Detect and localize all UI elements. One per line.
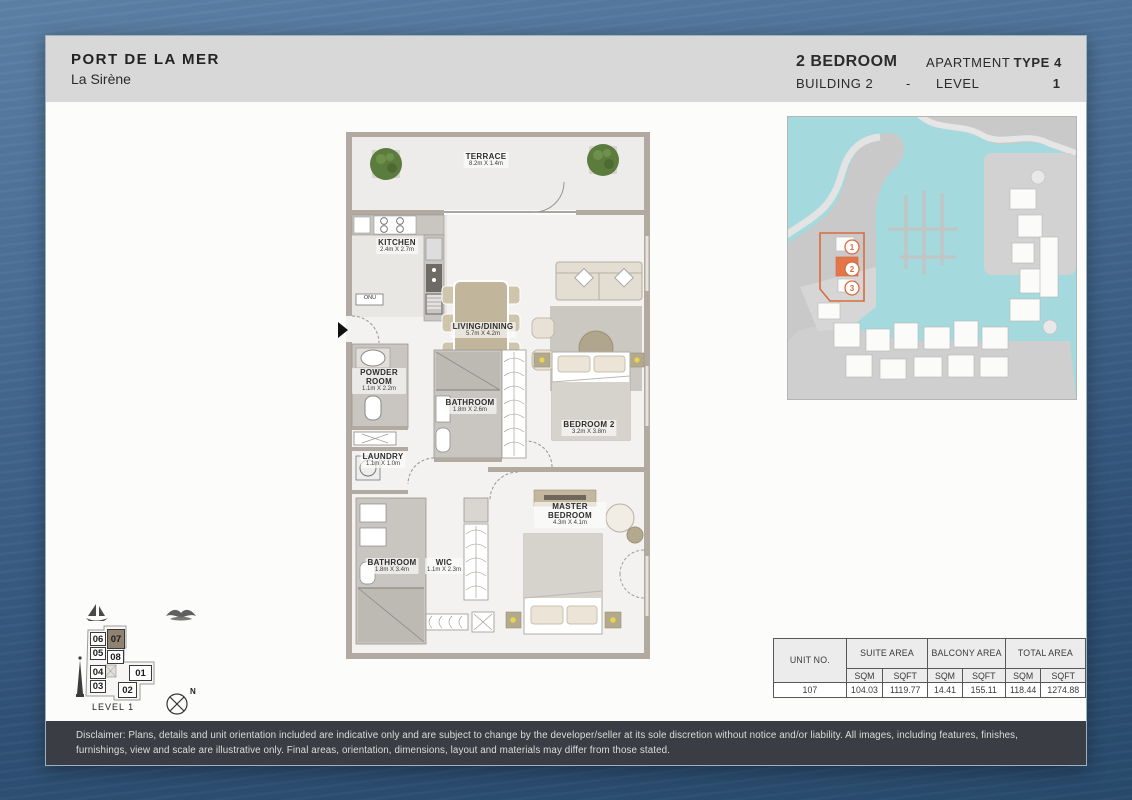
balcony-sqm-header: SQM [928,669,963,683]
keyplan-unit-01: 01 [129,665,152,681]
level-label: LEVEL [936,76,979,91]
room-label-terrace: TERRACE 8.2m X 1.4m [464,152,509,168]
total-sqm-header: SQM [1005,669,1041,683]
building-label: BUILDING 2 [796,76,873,91]
partition-wall [488,467,644,472]
unit-type-title: 2 BEDROOM [796,53,897,71]
entry-door-gap [346,316,352,342]
pillow [558,356,590,372]
apartment-label: APARTMENT [926,55,1010,70]
total-area-header: TOTAL AREA [1005,639,1085,669]
header-bar: PORT DE LA MER La Sirène 2 BEDROOM APART… [46,36,1086,102]
disclaimer-bar: Disclaimer: Plans, details and unit orie… [46,721,1086,765]
sink [360,528,386,546]
room-label-wic: WIC 1.1m X 2.3m [425,558,463,574]
sailboat-icon [86,604,108,621]
partition-wall [434,458,502,462]
compass-north-label: N [190,687,196,696]
suite-area-header: SUITE AREA [846,639,927,669]
terrace-plant-left [370,148,402,180]
compass-icon: N [167,687,196,714]
suite-sqm-header: SQM [846,669,882,683]
keyplan-unit-08: 08 [107,650,124,664]
side-table [627,527,643,543]
toilet [436,428,450,452]
keyplan-unit-07-highlighted: 07 [107,629,125,649]
balcony-sqm-value: 14.41 [928,683,963,698]
stove [374,216,416,234]
suite-sqft-header: SQFT [883,669,928,683]
balcony-sqft-value: 155.11 [962,683,1005,698]
room-label-powder-room: POWDER ROOM 1.1m X 2.2m [352,368,406,394]
floor-plan-drawing [338,126,663,683]
project-title: PORT DE LA MER [71,51,220,68]
apartment-type-value: TYPE 4 [1014,55,1062,70]
brochure-page: PORT DE LA MER La Sirène 2 BEDROOM APART… [45,35,1087,766]
room-label-master-bedroom: MASTER BEDROOM 4.3m X 4.1m [534,502,606,528]
room-label-bathroom-2: BATHROOM 1.8m X 2.6m [444,398,497,414]
location-map-drawing: 1 2 3 [788,117,1076,399]
keyplan-unit-03: 03 [90,680,106,693]
room-label-bedroom-2: BEDROOM 2 3.2m X 3.8m [561,420,616,436]
table-row: 107 104.03 1119.77 14.41 155.11 118.44 1… [774,683,1086,698]
kitchen-sink [354,217,370,233]
marker-1-label: 1 [850,243,855,252]
suite-sqm-value: 104.03 [846,683,882,698]
room-label-kitchen: KITCHEN 2.4m X 2.7m [376,238,418,254]
keyplan-unit-02: 02 [118,682,137,698]
keyplan-unit-05: 05 [90,647,106,660]
disclaimer-text: Disclaimer: Plans, details and unit orie… [76,730,1018,756]
pillow [531,606,563,624]
room-label-living-dining: LIVING/DINING 5.7m X 4.2m [451,322,516,338]
project-subtitle: La Sirène [71,71,220,87]
fridge [426,238,442,260]
location-map: 1 2 3 [787,116,1077,400]
total-sqft-value: 1274.88 [1041,683,1086,698]
level-value: 1 [1053,76,1060,91]
balcony-sqft-header: SQFT [962,669,1005,683]
pillow [594,356,625,372]
tower-icon [76,656,84,697]
room-label-master-bathroom: BATHROOM 1.8m X 3.4m [366,558,419,574]
marker-3-label: 3 [850,284,855,293]
terrace-plant-right [587,144,619,176]
wings-icon [166,610,196,621]
pillow [567,606,597,624]
total-sqft-header: SQFT [1041,669,1086,683]
lounge-chair [606,504,634,532]
keyplan-unit-06: 06 [90,632,106,646]
dining-table [442,281,520,361]
total-sqm-value: 118.44 [1005,683,1041,698]
suite-sqft-value: 1119.77 [883,683,928,698]
armchair [532,318,554,338]
unit-no-header: UNIT NO. [774,639,847,683]
floor-plan: TERRACE 8.2m X 1.4m KITCHEN 2.4m X 2.7m … [338,126,663,683]
unit-number-value: 107 [774,683,847,698]
room-label-laundry: LAUNDRY 1.1m X 1.0m [361,452,406,468]
onu-label: ONU [358,295,382,301]
keyplan-unit-04: 04 [90,665,106,679]
header-right: 2 BEDROOM APARTMENT TYPE 4 BUILDING 2 - … [796,53,1062,93]
keyplan-level-label: LEVEL 1 [92,702,134,712]
sink [361,350,385,366]
toilet [365,396,381,420]
hall-wardrobe [502,350,526,458]
header-left: PORT DE LA MER La Sirène [71,51,220,87]
key-plan: N 06 07 05 08 04 01 03 02 LEVEL 1 [74,602,204,720]
marker-2-label: 2 [850,265,855,274]
sink [360,504,386,522]
area-table: UNIT NO. SUITE AREA BALCONY AREA TOTAL A… [773,638,1086,698]
separator-dash: - [906,76,910,91]
hall-cabinet [354,432,396,445]
balcony-area-header: BALCONY AREA [928,639,1006,669]
